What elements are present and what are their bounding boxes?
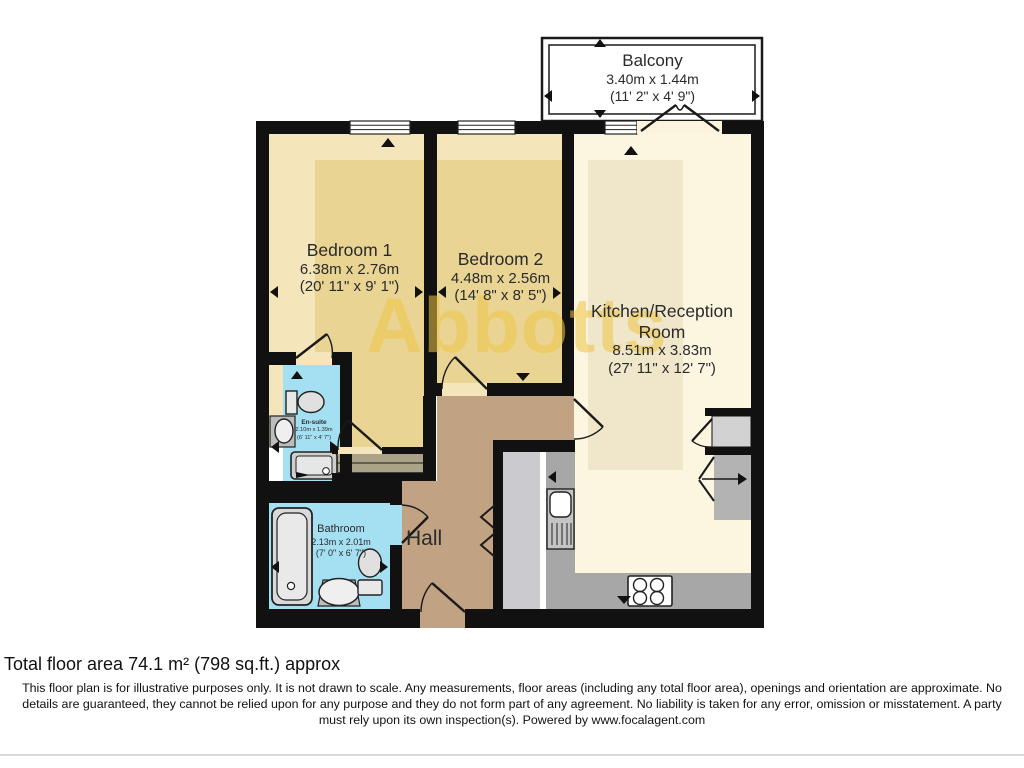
kitchen-appliance [714,455,751,520]
window-bedroom1 [350,121,410,134]
ensuite-metric: 2.10m x 1.39m [288,427,340,434]
kitchen-sink [547,489,574,549]
window-bedroom2 [458,121,515,134]
kitchen-label: Kitchen/Reception Room 8.51m x 3.83m (27… [572,301,752,378]
balcony-label: Balcony 3.40m x 1.44m (11' 2" x 4' 9") [560,51,745,104]
ensuite-toilet [286,391,324,414]
kitchen-metric: 8.51m x 3.83m [572,342,752,360]
disclaimer-line-2: details are guaranteed, they cannot be r… [0,697,1024,713]
bathroom-label: Bathroom 2.13m x 2.01m (7' 0" x 6' 7") [296,523,386,559]
bedroom1-metric: 6.38m x 2.76m [262,261,437,279]
window-kitchen [605,121,637,134]
bathroom-imperial: (7' 0" x 6' 7") [296,548,386,559]
page-bottom-rule [0,754,1024,756]
floorplan-drawing [0,0,1024,768]
kitchen-hob [628,576,672,606]
disclaimer-line-1: This floor plan is for illustrative purp… [0,681,1024,697]
bedroom2-metric: 4.48m x 2.56m [413,270,588,288]
bedroom2-imperial: (14' 8" x 8' 5") [413,287,588,305]
bedroom1-name: Bedroom 1 [262,240,437,261]
bedroom1-label: Bedroom 1 6.38m x 2.76m (20' 11" x 9' 1"… [262,240,437,296]
bathroom-door-threshold [390,505,402,545]
floorplan-page: Abbotts Balcony 3.40m x 1.44m (11' 2" x … [0,0,1024,768]
hall-label: Hall [406,527,476,552]
disclaimer-line-3: must rely upon its own inspection(s). Po… [0,713,1024,729]
bedroom1-door-threshold [338,447,382,454]
total-floor-area: Total floor area 74.1 m² (798 sq.ft.) ap… [4,654,340,675]
kitchen-name-line1: Kitchen/Reception [572,301,752,322]
kitchen-cupboard [712,416,751,447]
balcony-imperial: (11' 2" x 4' 9") [560,88,745,105]
bathroom-name: Bathroom [296,523,386,537]
balcony-name: Balcony [560,51,745,71]
kitchen-imperial: (27' 11" x 12' 7") [572,360,752,378]
ensuite-shower [291,452,337,479]
bedroom2-door-threshold [442,383,487,396]
ensuite-label: En-suite 2.10m x 1.39m (6' 11" x 4' 7") [288,419,340,442]
bedroom2-label: Bedroom 2 4.48m x 2.56m (14' 8" x 8' 5") [413,249,588,305]
closet-column [503,452,540,609]
front-door-threshold [420,609,465,628]
bedroom2-name: Bedroom 2 [413,249,588,270]
bathroom-basin [318,579,360,607]
ensuite-imperial: (6' 11" x 4' 7") [288,435,340,442]
kitchen-name-line2: Room [572,322,752,343]
hall-name: Hall [406,527,476,552]
bathroom-metric: 2.13m x 2.01m [296,537,386,548]
balcony-metric: 3.40m x 1.44m [560,71,745,88]
disclaimer: This floor plan is for illustrative purp… [0,681,1024,728]
bedroom1-imperial: (20' 11" x 9' 1") [262,278,437,296]
ensuite-name: En-suite [288,419,340,427]
